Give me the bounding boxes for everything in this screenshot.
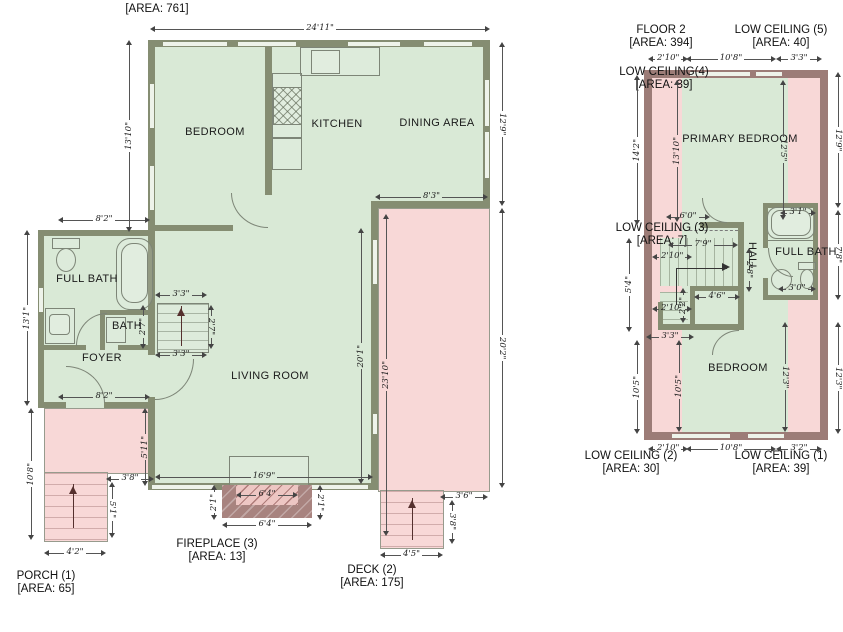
f2-window-bottom-2	[748, 434, 784, 438]
dim-f2-left-upper-outer: 14'2"	[632, 75, 642, 225]
label-f2-fullbath: FULL BATH	[760, 246, 843, 258]
window-top-3	[348, 42, 400, 46]
floor1-main-floor	[148, 40, 378, 490]
label-dining: DINING AREA	[382, 117, 492, 129]
kitchen-sink	[311, 50, 340, 74]
dim-f2-bottom-right: 3'2"	[776, 444, 822, 454]
vanity-sink	[49, 314, 70, 335]
dim-f2-right-upper-inner: 12'5"	[778, 80, 788, 220]
dim-f1-foyer-bottom: 8'2"	[58, 392, 150, 402]
window-wing-left	[39, 288, 43, 312]
dim-f1-left-upper: 13'10"	[124, 40, 134, 232]
label-bedroom: BEDROOM	[160, 126, 270, 138]
dim-f1-porch-left: 10'8"	[26, 408, 36, 540]
dim-f2-stair-right: 2'8"	[744, 248, 754, 292]
window-left-2	[150, 166, 154, 210]
window-living-right-1	[373, 240, 377, 284]
wall-wing-bottom-a	[38, 402, 66, 408]
label-foyer: FOYER	[70, 352, 134, 364]
dim-f1-stair-right: 2'7"	[206, 305, 216, 349]
window-top-4	[424, 42, 472, 46]
label-f2-bedroom: BEDROOM	[692, 362, 784, 374]
dim-f1-fp-left: 2'1"	[209, 485, 219, 518]
dim-f1-stair-bottom: 3'3"	[155, 350, 207, 360]
dim-f2-stair-top: 6'0"	[666, 212, 710, 222]
dim-f2-right-lower-inner: 12'3"	[780, 322, 790, 432]
wall-deck-top	[371, 201, 490, 208]
window-living-right-2	[373, 414, 377, 434]
dim-f2-left-upper-inner: 13'10"	[672, 80, 682, 222]
label-primary-bedroom: PRIMARY BEDROOM	[670, 133, 810, 145]
label-deck: DECK (2)[AREA: 175]	[312, 564, 432, 590]
wall-foyer-top-b	[118, 345, 155, 350]
dim-f2-stair-left-lower: 2'10"	[652, 304, 688, 314]
f2-window-top-2	[756, 72, 782, 76]
window-left-1	[150, 84, 154, 128]
f2-bath-wall-left-b	[763, 278, 768, 300]
kitchen-cabinet-lower	[272, 138, 302, 170]
label-living: LIVING ROOM	[210, 370, 330, 382]
dim-f1-fp-inner: 6'4"	[236, 490, 298, 500]
dim-f2-bath-tub: 3'1"	[780, 208, 816, 218]
dim-f2-top-left: 2'10"	[648, 54, 686, 64]
dim-f2-left-lower-inner: 10'5"	[674, 340, 684, 432]
dim-f2-stair-left-upper: 2'10"	[652, 252, 688, 262]
floorplan-canvas: [AREA: 761]	[0, 0, 843, 632]
dim-f1-deck-step-side: 3'8"	[447, 500, 457, 544]
dim-f2-stair-bottom: 3'3"	[646, 332, 694, 342]
dim-f1-deck-right: 20'2"	[497, 208, 507, 488]
deck-up-arrow	[412, 498, 413, 540]
label-porch: PORCH (1)[AREA: 65]	[0, 570, 92, 596]
dim-f2-top-right: 3'3"	[776, 54, 822, 64]
wall-bedroom-right	[265, 47, 272, 195]
toilet-bowl	[56, 248, 76, 272]
f2-window-bottom-1	[672, 434, 730, 438]
f2-bath-wall-bottom	[763, 295, 818, 300]
dim-f2-bath-sink: 3'0"	[778, 284, 816, 294]
dim-f2-bath-right: 7'8"	[833, 210, 843, 300]
dim-f2-stair-run: 7'9"	[668, 240, 738, 250]
dim-f1-porch-side: 5'11"	[140, 408, 150, 486]
dim-f1-fp-right: 2'1"	[315, 485, 325, 518]
deck-area	[378, 208, 490, 492]
dim-f1-porch-bottom: 4'2"	[44, 548, 106, 558]
floor1-stairs-arrow	[181, 306, 182, 346]
dim-f1-deck-step-bottom: 4'5"	[380, 550, 443, 560]
floor1-area-text: [AREA: 761]	[125, 3, 188, 15]
dim-f2-stair-box: 4'6"	[694, 292, 740, 302]
porch-area	[44, 408, 154, 474]
dim-f1-deck-inner: 23'10"	[381, 214, 391, 536]
label-fireplace: FIREPLACE (3)[AREA: 13]	[158, 538, 276, 564]
wall-wing-left	[38, 230, 44, 408]
dim-f1-left-mid: 13'1"	[22, 230, 32, 406]
dim-f2-left-lower-outer: 10'5"	[632, 340, 642, 434]
f2-bath-divider	[768, 240, 813, 241]
window-right-2	[485, 132, 489, 178]
dim-f1-right-upper: 12'9"	[497, 42, 507, 206]
window-top-2	[238, 42, 296, 46]
porch-up-arrow	[73, 484, 74, 528]
dim-f1-top: 24'11"	[150, 24, 490, 34]
dim-f2-bottom-mid: 10'8"	[686, 444, 776, 454]
floor1-area-label: [AREA: 761]	[97, 3, 217, 16]
dim-f2-left-mid: 5'4"	[624, 238, 634, 332]
dim-f1-fp-outer: 6'4"	[222, 520, 312, 530]
f2-wall-left	[644, 70, 652, 440]
floor2-title: FLOOR 2[AREA: 394]	[606, 24, 716, 50]
dim-f1-porch-step-h: 5'1"	[107, 482, 117, 538]
dim-f1-stair-left: 2'7"	[138, 305, 148, 349]
dim-f1-bath-top: 8'2"	[58, 215, 150, 225]
dim-f2-right-lower-outer: 12'3"	[833, 322, 843, 434]
f2-stair-wall-bottom	[658, 324, 744, 330]
dim-f2-bottom-left: 2'10"	[648, 444, 686, 454]
dim-f1-living-right: 20'1"	[356, 228, 366, 484]
label-kitchen: KITCHEN	[292, 118, 382, 130]
wall-wing-top	[38, 230, 155, 236]
dim-f1-deck-top: 8'3"	[375, 192, 488, 202]
dim-f1-living-bottom: 16'9"	[155, 472, 373, 482]
dim-f2-top-mid: 10'8"	[686, 54, 776, 64]
dim-f1-stair-top: 3'3"	[155, 290, 207, 300]
label-fullbath: FULL BATH	[42, 273, 132, 285]
label-lc5: LOW CEILING (5)[AREA: 40]	[716, 24, 843, 50]
label-lc4: LOW CEILING(4)[AREA: 39]	[608, 66, 720, 92]
wall-bedroom-bottom	[155, 225, 233, 231]
dim-f2-right-upper-outer: 12'9"	[833, 72, 843, 208]
window-top-1	[163, 42, 227, 46]
window-bottom-1	[152, 485, 214, 489]
